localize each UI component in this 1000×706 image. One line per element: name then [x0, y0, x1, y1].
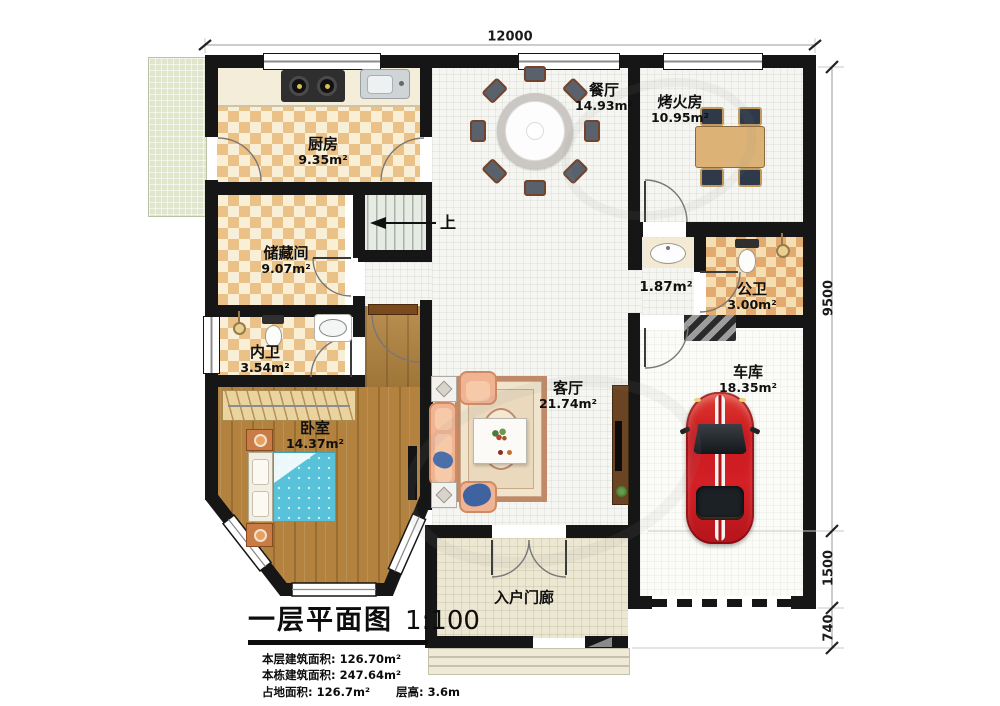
label-kitchen: 厨房9.35m²	[298, 136, 347, 168]
bay-window-bottom	[292, 583, 376, 596]
room-area: 1.87m²	[639, 280, 692, 296]
bedroom-door-leaf	[368, 304, 418, 315]
stat-label: 本层建筑面积:	[262, 652, 336, 666]
public-bath-shower	[776, 244, 790, 258]
stat-value: 247.64m²	[340, 668, 401, 682]
label-hallway-area: 1.87m²	[639, 280, 692, 296]
wall-left-lower	[205, 372, 218, 500]
bed-fold	[274, 453, 316, 483]
faucet	[399, 81, 404, 86]
wall-storage-right-a	[353, 195, 365, 258]
room-name: 内卫	[240, 344, 289, 361]
inner-bath-window	[203, 316, 220, 374]
wardrobe-rail	[228, 405, 349, 407]
wall-row2-top-b	[686, 222, 803, 237]
public-bath-toilet	[735, 239, 759, 273]
stat-value: 126.7m²	[317, 685, 370, 699]
room-name: 卧室	[286, 420, 344, 437]
burner-left	[289, 76, 309, 96]
stat-label: 本栋建筑面积:	[262, 668, 336, 682]
title-underline	[248, 640, 428, 645]
wall-kitchen-dining	[420, 67, 432, 137]
title-block: 一层平面图 1:100 本层建筑面积: 126.70m² 本栋建筑面积: 247…	[248, 598, 608, 701]
floor-plan-canvas: 厨房9.35m² 餐厅14.93m² 烤火房10.95m² 储藏间9.07m² …	[0, 0, 1000, 706]
dim-right-upper-value: 9500	[822, 280, 837, 316]
wall-left-upper	[205, 55, 218, 137]
room-area: 3.54m²	[240, 361, 289, 375]
room-name: 储藏间	[261, 245, 310, 262]
room-area: 14.93m²	[575, 99, 633, 113]
stat-label: 占地面积:	[262, 685, 313, 699]
wardrobe	[222, 390, 356, 421]
room-name: 厨房	[298, 136, 347, 153]
car-rear-window	[696, 486, 744, 520]
wall-left-mid	[205, 180, 218, 318]
stat-line-2: 本栋建筑面积: 247.64m²	[262, 667, 608, 684]
room-area: 10.95m²	[651, 111, 709, 125]
stairs-up-text: 上	[440, 214, 456, 232]
room-name: 餐厅	[575, 82, 633, 99]
label-living: 客厅21.74m²	[539, 380, 597, 412]
pillow	[252, 459, 269, 485]
room-name: 公卫	[727, 281, 776, 298]
label-firepit: 烤火房10.95m²	[651, 94, 709, 126]
room-area: 9.35m²	[298, 153, 347, 167]
label-dining: 餐厅14.93m²	[575, 82, 633, 114]
room-area: 14.37m²	[286, 437, 344, 451]
plan-title: 一层平面图	[248, 598, 393, 637]
wall-garage-bottom-left-stub	[628, 596, 652, 609]
wall-hatch-strip	[684, 315, 736, 341]
bedroom-corridor-floor	[365, 306, 420, 387]
firepit-window	[663, 53, 763, 70]
stat-label: 层高:	[396, 685, 424, 699]
label-bedroom: 卧室14.37m²	[286, 420, 344, 452]
label-public-bath: 公卫3.00m²	[727, 281, 776, 313]
wall-garage-bottom-right-stub	[791, 596, 803, 609]
burner-right	[317, 76, 337, 96]
wall-hall-bath	[694, 237, 706, 272]
terrace-floor	[148, 57, 207, 217]
label-inner-bath: 内卫3.54m²	[240, 344, 289, 376]
label-storage: 储藏间9.07m²	[261, 245, 310, 277]
room-area: 21.74m²	[539, 397, 597, 411]
pillow	[252, 491, 269, 517]
stove	[281, 70, 345, 102]
bed-mattress	[273, 452, 336, 522]
inner-bath-sink	[314, 314, 352, 342]
wall-innerbath-bottom	[205, 375, 365, 387]
room-area: 3.00m²	[727, 298, 776, 312]
nightstand-top	[246, 429, 273, 451]
dining-chair	[470, 120, 486, 142]
label-garage: 车库18.35m²	[719, 364, 777, 396]
inner-bath-shower	[233, 322, 246, 335]
bed-headboard	[248, 452, 273, 522]
wall-kitchen-bottom	[205, 182, 432, 195]
hall-basin-counter	[643, 238, 694, 268]
public-bath-shower-hose	[781, 233, 783, 245]
room-name: 烤火房	[651, 94, 709, 111]
side-table-top	[431, 376, 457, 402]
room-area: 18.35m²	[719, 381, 777, 395]
dim-right-lower-value: 740	[822, 614, 837, 641]
wall-row2-top-a	[628, 222, 643, 237]
wall-right	[803, 55, 816, 609]
plan-scale: 1:100	[405, 606, 480, 636]
inner-bath-shower-hose	[238, 311, 240, 323]
room-area: 9.07m²	[261, 262, 310, 276]
wall-stairs-bottom	[358, 250, 432, 262]
stat-value: 3.6m	[428, 685, 460, 699]
kitchen-window	[263, 53, 381, 70]
room-name: 客厅	[539, 380, 597, 397]
car-headlight-right	[739, 398, 746, 402]
label-stairs-up: 上	[440, 214, 456, 232]
stat-line-3: 占地面积: 126.7m²层高: 3.6m	[262, 684, 608, 701]
nightstand-bottom	[246, 523, 273, 547]
car-headlight-left	[694, 398, 701, 402]
stats-lines: 本层建筑面积: 126.70m² 本栋建筑面积: 247.64m² 占地面积: …	[262, 651, 608, 701]
dim-top-value: 12000	[487, 30, 532, 45]
stat-value: 126.70m²	[340, 652, 401, 666]
dining-chair	[524, 180, 546, 196]
stat-line-1: 本层建筑面积: 126.70m²	[262, 651, 608, 668]
wall-hall-left	[628, 237, 642, 270]
garage-door-dashed	[652, 599, 791, 607]
kitchen-sink	[360, 69, 410, 99]
dining-chair	[524, 66, 546, 82]
room-name: 车库	[719, 364, 777, 381]
dim-right-middle-value: 1500	[822, 550, 837, 586]
